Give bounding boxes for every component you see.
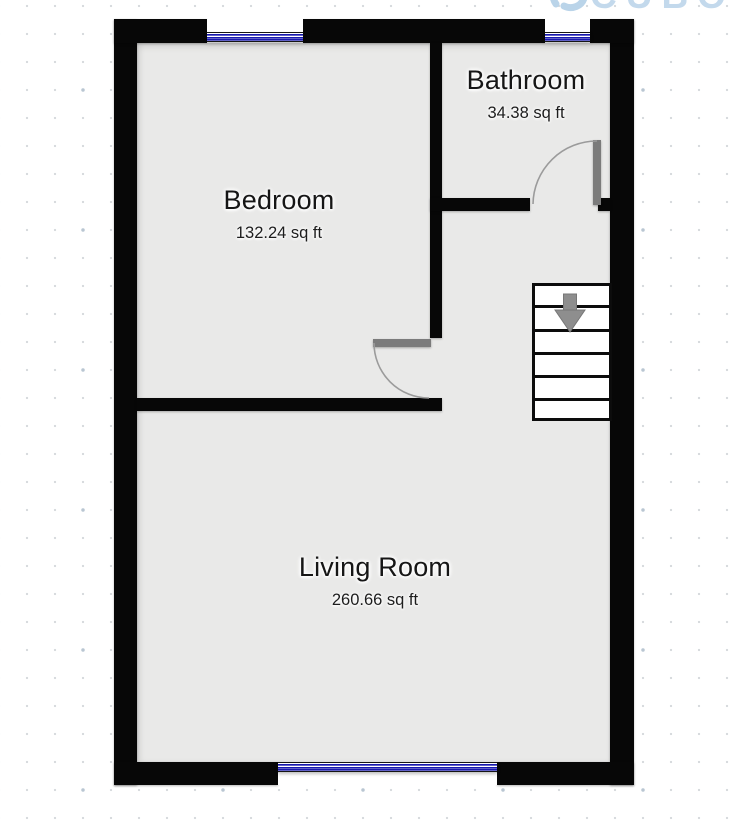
wall-bedroom-horizontal xyxy=(137,398,442,411)
bathroom-door-leaf xyxy=(593,140,601,205)
stair-tread-line xyxy=(535,329,609,332)
wall-top-right-segment xyxy=(590,19,634,43)
swirl-logo-icon xyxy=(548,0,590,18)
wall-top-mid-segment xyxy=(303,19,545,43)
window-bedroom xyxy=(207,32,303,42)
wall-top-left-segment xyxy=(114,19,207,43)
watermark: CUBO xyxy=(548,0,735,18)
window-bathroom-gap xyxy=(545,19,590,33)
window-bedroom-gap xyxy=(207,19,303,33)
wall-bedroom-vertical xyxy=(430,43,442,338)
wall-right xyxy=(610,19,634,785)
bedroom-door-leaf xyxy=(373,339,431,347)
window-living xyxy=(278,762,497,772)
stairs-box xyxy=(532,283,612,421)
wall-bottom-right-segment xyxy=(497,762,634,785)
wall-left xyxy=(114,19,137,785)
window-living-gap xyxy=(278,773,497,785)
stair-tread-line xyxy=(535,305,609,308)
stair-tread-line xyxy=(535,352,609,355)
floorplan-canvas: CUBO Bedroom 132. xyxy=(0,0,750,834)
stair-tread-line xyxy=(535,398,609,401)
stair-tread-line xyxy=(535,375,609,378)
wall-bathroom-bottom xyxy=(430,198,530,211)
watermark-text: CUBO xyxy=(590,0,735,17)
window-bathroom xyxy=(545,32,590,42)
wall-bottom-left-segment xyxy=(114,762,278,785)
